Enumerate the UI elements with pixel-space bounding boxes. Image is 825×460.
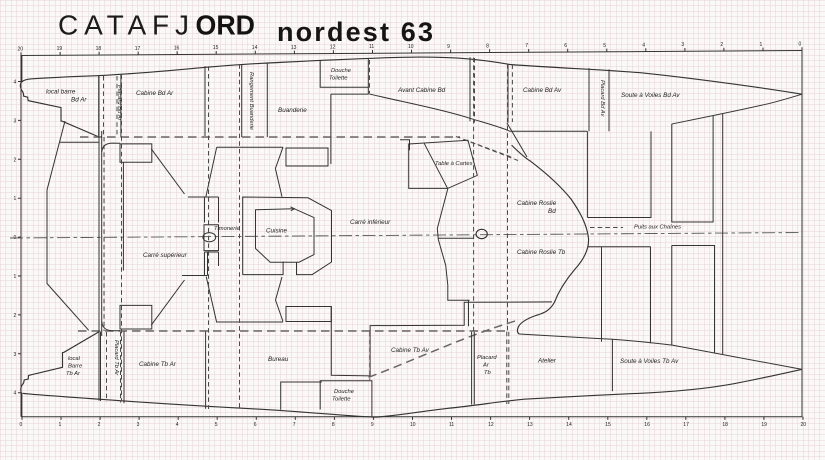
svg-text:Douche: Douche xyxy=(334,389,355,395)
svg-text:13: 13 xyxy=(527,422,533,428)
svg-text:5: 5 xyxy=(215,422,218,428)
svg-text:13: 13 xyxy=(291,45,297,51)
svg-text:local barre: local barre xyxy=(46,89,76,96)
svg-text:10: 10 xyxy=(410,422,416,428)
svg-text:Timonerie: Timonerie xyxy=(214,226,240,232)
svg-text:nordest 63: nordest 63 xyxy=(277,17,433,47)
svg-text:0: 0 xyxy=(20,422,23,428)
svg-text:Cuisine: Cuisine xyxy=(266,228,287,235)
svg-text:3: 3 xyxy=(681,42,684,48)
svg-text:4: 4 xyxy=(176,422,179,428)
svg-text:Placard: Placard xyxy=(477,355,497,361)
svg-text:Soute à Voiles Tb Av: Soute à Voiles Tb Av xyxy=(620,358,679,365)
svg-text:Atelier: Atelier xyxy=(537,358,557,365)
svg-text:Cabine Bd Ar: Cabine Bd Ar xyxy=(136,90,174,97)
svg-text:5: 5 xyxy=(603,43,606,49)
svg-text:2: 2 xyxy=(14,157,17,163)
svg-text:Bd Ar: Bd Ar xyxy=(71,97,87,104)
svg-text:8: 8 xyxy=(486,44,489,50)
svg-text:1: 1 xyxy=(760,42,763,48)
svg-text:20: 20 xyxy=(18,47,24,53)
svg-text:Bd: Bd xyxy=(548,208,556,215)
svg-text:2: 2 xyxy=(14,313,17,319)
svg-text:Soute à Voiles Bd Av: Soute à Voiles Bd Av xyxy=(621,92,680,99)
svg-text:6: 6 xyxy=(254,422,257,428)
svg-text:16: 16 xyxy=(174,46,180,52)
svg-text:7: 7 xyxy=(525,43,528,49)
svg-text:14: 14 xyxy=(566,422,572,428)
svg-text:18: 18 xyxy=(722,422,728,428)
svg-text:Tb: Tb xyxy=(484,370,492,376)
svg-text:6: 6 xyxy=(564,43,567,49)
svg-text:17: 17 xyxy=(135,46,141,52)
svg-text:7: 7 xyxy=(293,422,296,428)
svg-text:4: 4 xyxy=(642,43,645,49)
svg-text:17: 17 xyxy=(683,422,689,428)
svg-text:2: 2 xyxy=(720,42,723,48)
svg-text:Buanderie: Buanderie xyxy=(278,107,307,114)
svg-text:Table à Cartes: Table à Cartes xyxy=(435,161,473,167)
svg-text:8: 8 xyxy=(332,422,335,428)
svg-text:19: 19 xyxy=(761,422,767,428)
svg-text:Cabine Tb Ar: Cabine Tb Ar xyxy=(139,361,177,368)
svg-text:Toilette: Toilette xyxy=(332,397,351,403)
svg-text:Bureau: Bureau xyxy=(268,356,289,363)
svg-text:1: 1 xyxy=(59,422,62,428)
svg-text:Tb Ar: Tb Ar xyxy=(66,371,81,377)
svg-text:9: 9 xyxy=(447,44,450,50)
svg-text:Placard Bd Av: Placard Bd Av xyxy=(599,80,605,118)
svg-text:1: 1 xyxy=(14,196,17,202)
svg-text:16: 16 xyxy=(644,422,650,428)
svg-text:Placard Tb Ar: Placard Tb Ar xyxy=(113,340,119,376)
svg-text:local: local xyxy=(68,356,81,362)
svg-text:Avant Cabine Bd: Avant Cabine Bd xyxy=(397,87,446,94)
svg-text:Toilette: Toilette xyxy=(329,76,348,82)
svg-text:Cabine Roslie: Cabine Roslie xyxy=(517,200,557,207)
svg-text:3: 3 xyxy=(14,352,17,358)
svg-text:Puits aux Chaînes: Puits aux Chaînes xyxy=(634,225,681,231)
svg-text:Carré supérieur: Carré supérieur xyxy=(143,252,188,259)
svg-text:14: 14 xyxy=(252,45,258,51)
svg-text:1: 1 xyxy=(14,274,17,280)
svg-text:11: 11 xyxy=(369,44,374,50)
svg-text:10: 10 xyxy=(408,44,414,50)
svg-text:Carré inférieur: Carré inférieur xyxy=(350,219,391,226)
svg-text:Cabine Roslie Tb: Cabine Roslie Tb xyxy=(517,249,566,256)
svg-text:20: 20 xyxy=(801,422,807,428)
svg-text:3: 3 xyxy=(14,118,17,124)
svg-text:12: 12 xyxy=(488,422,494,428)
svg-text:12: 12 xyxy=(330,45,336,51)
svg-text:9: 9 xyxy=(371,422,374,428)
svg-text:11: 11 xyxy=(449,422,454,428)
svg-text:Ar: Ar xyxy=(482,363,490,369)
svg-text:19: 19 xyxy=(57,46,63,52)
svg-text:Rangement Buanderie: Rangement Buanderie xyxy=(248,72,254,131)
svg-text:4: 4 xyxy=(14,391,17,397)
svg-text:15: 15 xyxy=(213,45,219,51)
svg-text:Douche: Douche xyxy=(331,68,352,74)
svg-text:Cabine Tb Av: Cabine Tb Av xyxy=(391,347,430,354)
svg-text:0: 0 xyxy=(799,42,802,48)
svg-text:ORD: ORD xyxy=(196,10,256,41)
svg-text:15: 15 xyxy=(605,422,611,428)
svg-text:18: 18 xyxy=(96,46,102,52)
svg-text:4: 4 xyxy=(14,80,17,86)
svg-text:Barre: Barre xyxy=(68,364,83,370)
svg-text:3: 3 xyxy=(137,422,140,428)
svg-text:2: 2 xyxy=(98,422,101,428)
svg-text:Cabine Bd Av: Cabine Bd Av xyxy=(523,87,562,94)
